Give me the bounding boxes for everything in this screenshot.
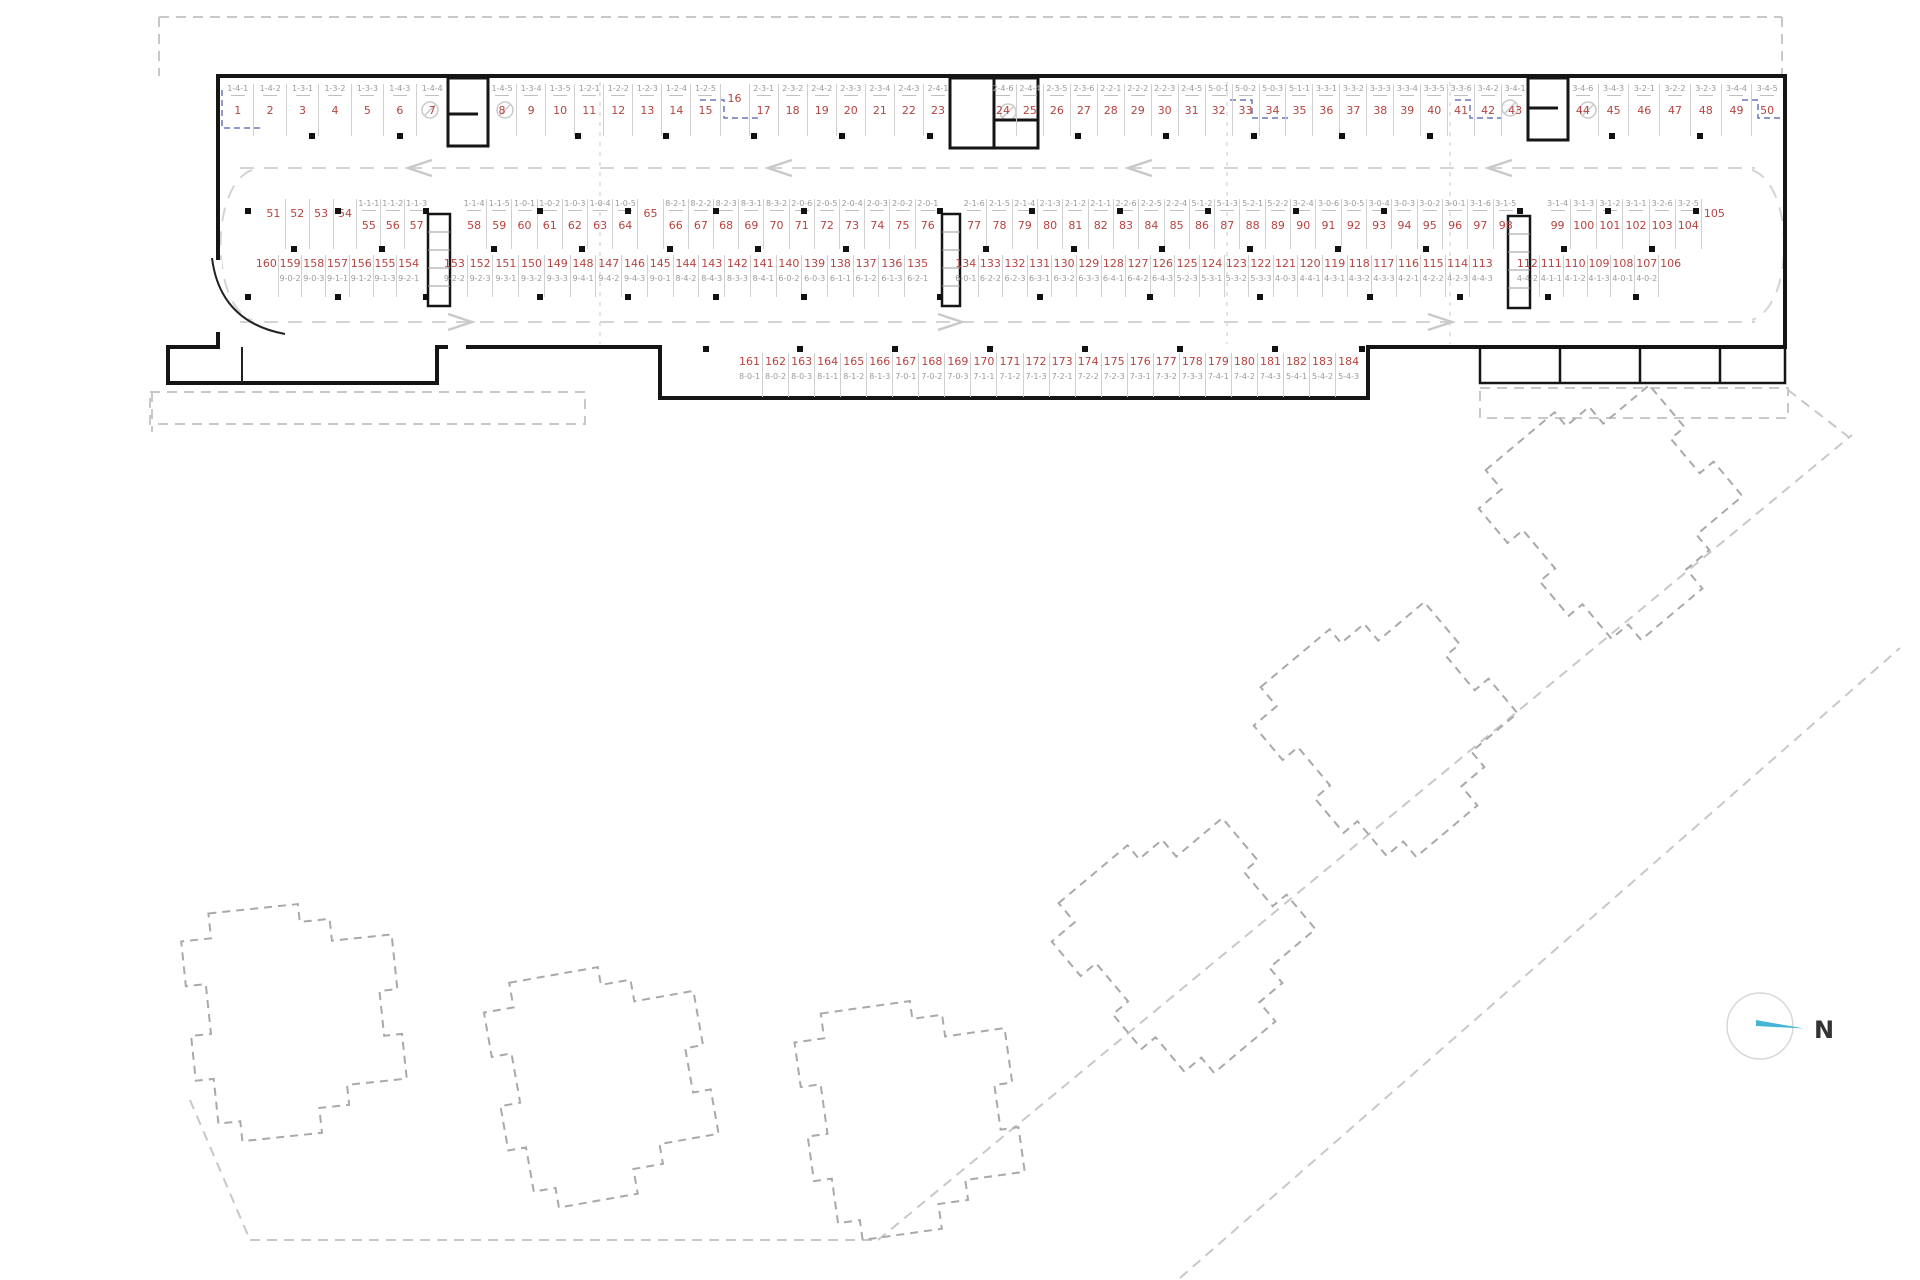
parking-space: 1727-1-3 bbox=[1023, 353, 1049, 397]
stall-tick-mark bbox=[1043, 210, 1057, 211]
parking-space-number: 99 bbox=[1545, 219, 1570, 232]
parking-space-code: 4-3-3 bbox=[1372, 274, 1396, 284]
column-marker bbox=[983, 246, 989, 252]
column-marker bbox=[1381, 208, 1387, 214]
parking-space-code: 7-4-3 bbox=[1258, 372, 1283, 382]
parking-space-number: 112 bbox=[1516, 257, 1539, 270]
stall-tick-mark bbox=[1246, 210, 1260, 211]
plan-linework: N bbox=[0, 0, 1920, 1280]
parking-space: 52 bbox=[285, 199, 309, 249]
parking-space: 1104-1-2 bbox=[1563, 255, 1587, 297]
column-marker bbox=[625, 208, 631, 214]
stall-tick-mark bbox=[1448, 210, 1462, 211]
parking-space-code: 7-3-2 bbox=[1154, 372, 1179, 382]
stall-tick-mark bbox=[1454, 95, 1468, 96]
parking-space: 1-3-49 bbox=[516, 84, 545, 136]
column-marker bbox=[1697, 133, 1703, 139]
column-marker bbox=[927, 133, 933, 139]
parking-space-code: 1-2-4 bbox=[662, 84, 690, 94]
parking-space-code: 6-3-1 bbox=[1028, 274, 1052, 284]
parking-space-number: 102 bbox=[1623, 219, 1648, 232]
parking-space-code: 1-2-5 bbox=[691, 84, 719, 94]
parking-space-code: 1-3-3 bbox=[352, 84, 383, 94]
parking-space-number: 35 bbox=[1286, 104, 1312, 117]
parking-space: 1579-1-1 bbox=[325, 255, 349, 297]
parking-space: 1-4-11 bbox=[222, 84, 253, 136]
stall-tick-mark bbox=[694, 210, 708, 211]
parking-space-number: 29 bbox=[1125, 104, 1151, 117]
column-marker bbox=[1293, 208, 1299, 214]
parking-space-code: 8-4-2 bbox=[674, 274, 699, 284]
parking-space-number: 170 bbox=[971, 355, 996, 368]
parking-space-code: 2-2-5 bbox=[1139, 199, 1163, 209]
parking-space: 1589-0-3 bbox=[301, 255, 325, 297]
parking-row-group: 515253541-1-1551-1-2561-1-357 bbox=[262, 199, 428, 249]
column-marker bbox=[843, 246, 849, 252]
parking-space: 1396-0-3 bbox=[801, 255, 827, 297]
parking-space-code: 8-3-2 bbox=[764, 199, 788, 209]
parking-space-number: 40 bbox=[1421, 104, 1447, 117]
parking-space-number: 83 bbox=[1114, 219, 1138, 232]
stall-tick-mark bbox=[992, 210, 1006, 211]
stall-tick-mark bbox=[593, 210, 607, 211]
parking-space-code: 1-4-1 bbox=[222, 84, 253, 94]
parking-space-number: 94 bbox=[1392, 219, 1416, 232]
column-marker bbox=[579, 246, 585, 252]
parking-space-code: 5-0-1 bbox=[1206, 84, 1232, 94]
parking-space-number: 141 bbox=[751, 257, 776, 270]
parking-space-code: 6-1-1 bbox=[828, 274, 853, 284]
parking-space: 1406-0-2 bbox=[776, 255, 802, 297]
parking-space-number: 127 bbox=[1126, 257, 1150, 270]
parking-space-number: 167 bbox=[893, 355, 918, 368]
parking-space: 1687-0-2 bbox=[918, 353, 944, 397]
parking-space-code: 5-4-3 bbox=[1336, 372, 1361, 382]
parking-space-number: 56 bbox=[381, 219, 404, 232]
parking-space-number: 131 bbox=[1028, 257, 1052, 270]
parking-space: 5-1-135 bbox=[1285, 84, 1312, 136]
parking-space-code: 5-1-1 bbox=[1286, 84, 1312, 94]
parking-space-number: 134 bbox=[954, 257, 978, 270]
parking-space-number: 27 bbox=[1071, 104, 1097, 117]
parking-space-code: 8-0-3 bbox=[789, 372, 814, 382]
parking-space-number: 153 bbox=[442, 257, 467, 270]
parking-space-code: 3-1-5 bbox=[1494, 199, 1518, 209]
parking-space-number: 179 bbox=[1206, 355, 1231, 368]
parking-space-number: 37 bbox=[1340, 104, 1366, 117]
parking-space: 1529-2-3 bbox=[467, 255, 493, 297]
stall-tick-mark bbox=[1131, 95, 1145, 96]
parking-row-group: 1-4-111-4-221-3-131-3-241-3-351-4-361-4-… bbox=[222, 84, 448, 136]
parking-space: 1418-4-1 bbox=[750, 255, 776, 297]
parking-space-number: 139 bbox=[802, 257, 827, 270]
parking-space-number: 66 bbox=[664, 219, 688, 232]
parking-space: 3-4-143 bbox=[1501, 84, 1528, 136]
parking-space: 3-1-697 bbox=[1467, 199, 1492, 249]
parking-space: 8-2-368 bbox=[713, 199, 738, 249]
column-marker bbox=[537, 294, 543, 300]
parking-space-code: 9-4-2 bbox=[596, 274, 621, 284]
parking-space-number: 51 bbox=[262, 207, 285, 220]
parking-space: 1336-2-2 bbox=[978, 255, 1003, 297]
parking-space: 1114-1-1 bbox=[1539, 255, 1563, 297]
parking-space-code: 3-3-2 bbox=[1340, 84, 1366, 94]
parking-space: 1489-4-1 bbox=[570, 255, 596, 297]
column-marker bbox=[713, 208, 719, 214]
parking-space-code: 3-2-2 bbox=[1660, 84, 1690, 94]
parking-space-number: 117 bbox=[1372, 257, 1396, 270]
parking-space-code: 2-3-2 bbox=[779, 84, 807, 94]
parking-space-code: 6-4-3 bbox=[1151, 274, 1175, 284]
parking-space-code: 2-0-4 bbox=[840, 199, 864, 209]
parking-space-code: 9-0-3 bbox=[302, 274, 325, 284]
parking-space-code: 1-3-1 bbox=[287, 84, 318, 94]
parking-space-number: 31 bbox=[1179, 104, 1205, 117]
parking-space-number: 151 bbox=[493, 257, 518, 270]
parking-space-code: 1-2-1 bbox=[575, 84, 603, 94]
parking-space: 3-3-540 bbox=[1420, 84, 1447, 136]
parking-space-code: 3-1-3 bbox=[1571, 199, 1596, 209]
parking-space-number: 57 bbox=[405, 219, 428, 232]
parking-space-number: 184 bbox=[1336, 355, 1361, 368]
parking-space-number: 111 bbox=[1540, 257, 1563, 270]
parking-row-group: 1539-2-21529-2-31519-3-11509-3-21499-3-3… bbox=[442, 255, 930, 297]
column-marker bbox=[379, 246, 385, 252]
parking-space: 1519-3-1 bbox=[492, 255, 518, 297]
parking-row-group: 1-4-581-3-491-3-5101-2-1111-2-2121-2-313… bbox=[488, 84, 952, 136]
column-marker bbox=[1037, 294, 1043, 300]
parking-space: 3-1-2101 bbox=[1596, 199, 1622, 249]
stall-tick-mark bbox=[845, 210, 859, 211]
parking-space-code: 1-4-4 bbox=[417, 84, 448, 94]
parking-space-code: 5-3-3 bbox=[1249, 274, 1273, 284]
parking-space-code: 1-3-5 bbox=[546, 84, 574, 94]
parking-space-number: 124 bbox=[1200, 257, 1224, 270]
parking-space: 1-2-515 bbox=[690, 84, 719, 136]
parking-space-code: 9-0-1 bbox=[648, 274, 673, 284]
parking-space-number: 14 bbox=[662, 104, 690, 117]
parking-space: 1438-4-3 bbox=[698, 255, 724, 297]
parking-space: 2-3-218 bbox=[778, 84, 807, 136]
parking-space: 105 bbox=[1701, 199, 1727, 249]
stall-tick-mark bbox=[1499, 210, 1513, 211]
parking-space: 2-0-275 bbox=[889, 199, 914, 249]
column-marker bbox=[1272, 346, 1278, 352]
stall-tick-mark bbox=[328, 95, 342, 96]
stall-tick-mark bbox=[996, 95, 1010, 96]
parking-space-code: 4-3-1 bbox=[1323, 274, 1347, 284]
parking-space-code: 3-4-6 bbox=[1568, 84, 1598, 94]
parking-space-number: 43 bbox=[1502, 104, 1528, 117]
parking-space-number: 90 bbox=[1291, 219, 1315, 232]
parking-space-number: 160 bbox=[255, 257, 278, 270]
parking-space-code: 6-2-1 bbox=[905, 274, 930, 284]
parking-space-number: 161 bbox=[737, 355, 762, 368]
parking-space-number: 165 bbox=[841, 355, 866, 368]
parking-space-number: 1 bbox=[222, 104, 253, 117]
stall-tick-mark bbox=[1266, 95, 1280, 96]
parking-space-code: 2-0-3 bbox=[865, 199, 889, 209]
stall-tick-mark bbox=[1427, 95, 1441, 96]
column-marker bbox=[1359, 346, 1365, 352]
stall-tick-mark bbox=[518, 210, 532, 211]
parking-space-code: 9-3-1 bbox=[493, 274, 518, 284]
parking-space: 1509-3-2 bbox=[518, 255, 544, 297]
parking-space: 5-0-233 bbox=[1232, 84, 1259, 136]
parking-space-number: 19 bbox=[808, 104, 836, 117]
parking-space: 1346-0-1 bbox=[954, 255, 978, 297]
parking-space-number: 152 bbox=[468, 257, 493, 270]
parking-space-number: 130 bbox=[1052, 257, 1076, 270]
parking-space: 1658-1-2 bbox=[840, 353, 866, 397]
column-marker bbox=[1367, 294, 1373, 300]
parking-space-code: 4-0-3 bbox=[1274, 274, 1298, 284]
column-marker bbox=[245, 294, 251, 300]
parking-space: 2-0-572 bbox=[814, 199, 839, 249]
parking-space: 8-3-270 bbox=[763, 199, 788, 249]
parking-space-code: 2-3-3 bbox=[837, 84, 865, 94]
parking-space-code: 2-1-1 bbox=[1089, 199, 1113, 209]
parking-space: 8-2-267 bbox=[688, 199, 713, 249]
parking-space-number: 34 bbox=[1260, 104, 1286, 117]
parking-space: 54 bbox=[333, 199, 357, 249]
parking-space-code: 3-3-4 bbox=[1394, 84, 1420, 94]
parking-space-number: 126 bbox=[1151, 257, 1175, 270]
parking-space: 8-3-169 bbox=[738, 199, 763, 249]
stall-tick-mark bbox=[410, 210, 424, 211]
parking-space-number: 176 bbox=[1128, 355, 1153, 368]
parking-space-code: 6-4-2 bbox=[1126, 274, 1150, 284]
parking-space-code: 5-0-3 bbox=[1260, 84, 1286, 94]
parking-space: 5-0-334 bbox=[1259, 84, 1286, 136]
stall-tick-mark bbox=[669, 210, 683, 211]
parking-space: 53 bbox=[309, 199, 333, 249]
parking-space-number: 30 bbox=[1152, 104, 1178, 117]
parking-space-number: 5 bbox=[352, 104, 383, 117]
parking-space-code: 3-4-5 bbox=[1752, 84, 1782, 94]
parking-space-number: 15 bbox=[691, 104, 719, 117]
stall-tick-mark bbox=[1607, 95, 1621, 96]
parking-space-code: 8-0-1 bbox=[737, 372, 762, 382]
parking-space: 1648-1-1 bbox=[814, 353, 840, 397]
stall-tick-mark bbox=[873, 95, 887, 96]
column-marker bbox=[1517, 208, 1523, 214]
parking-space-code: 2-2-1 bbox=[1098, 84, 1124, 94]
parking-space-code: 9-4-1 bbox=[571, 274, 596, 284]
parking-space-number: 91 bbox=[1316, 219, 1340, 232]
column-marker bbox=[663, 133, 669, 139]
parking-space-code: 4-4-3 bbox=[1470, 274, 1494, 284]
parking-space-number: 96 bbox=[1443, 219, 1467, 232]
stall-tick-mark bbox=[1397, 210, 1411, 211]
stall-tick-mark bbox=[669, 95, 683, 96]
parking-space: 1-1-155 bbox=[356, 199, 380, 249]
parking-space-code: 9-2-3 bbox=[468, 274, 493, 284]
parking-space: 2-2-683 bbox=[1113, 199, 1138, 249]
parking-space-code: 7-1-1 bbox=[971, 372, 996, 382]
parking-space-code: 6-2-3 bbox=[1003, 274, 1027, 284]
parking-space-number: 84 bbox=[1139, 219, 1163, 232]
parking-space-number: 147 bbox=[596, 257, 621, 270]
parking-space: 1-1-458 bbox=[462, 199, 486, 249]
parking-space: 2-1-479 bbox=[1012, 199, 1037, 249]
parking-space-code: 2-0-5 bbox=[815, 199, 839, 209]
parking-space: 1-2-212 bbox=[603, 84, 632, 136]
parking-space-number: 132 bbox=[1003, 257, 1027, 270]
stall-tick-mark bbox=[492, 210, 506, 211]
stall-tick-mark bbox=[1637, 95, 1651, 96]
parking-space-number: 142 bbox=[725, 257, 750, 270]
parking-space: 160 bbox=[255, 255, 278, 297]
parking-space-number: 92 bbox=[1342, 219, 1366, 232]
parking-space-code: 2-4-3 bbox=[895, 84, 923, 94]
parking-space-code: 4-4-1 bbox=[1298, 274, 1322, 284]
column-marker bbox=[1163, 133, 1169, 139]
stall-tick-mark bbox=[698, 95, 712, 96]
stall-tick-mark bbox=[1629, 210, 1643, 211]
storage-rooms bbox=[1480, 347, 1785, 383]
parking-space-number: 85 bbox=[1165, 219, 1189, 232]
parking-space-number: 145 bbox=[648, 257, 673, 270]
parking-space: 1214-0-3 bbox=[1273, 255, 1298, 297]
stall-tick-mark bbox=[1185, 95, 1199, 96]
parking-space-code: 9-2-2 bbox=[442, 274, 467, 284]
stall-tick-mark bbox=[386, 210, 400, 211]
parking-space-number: 143 bbox=[699, 257, 724, 270]
parking-space-number: 175 bbox=[1102, 355, 1127, 368]
parking-space: 2-1-677 bbox=[962, 199, 986, 249]
parking-space-number: 9 bbox=[517, 104, 545, 117]
stall-tick-mark bbox=[1699, 95, 1713, 96]
stall-tick-mark bbox=[1400, 95, 1414, 96]
parking-space: 3-0-691 bbox=[1315, 199, 1340, 249]
parking-space-number: 70 bbox=[764, 219, 788, 232]
stall-tick-mark bbox=[820, 210, 834, 211]
stall-tick-mark bbox=[1077, 95, 1091, 96]
parking-space: 1386-1-1 bbox=[827, 255, 853, 297]
parking-space-number: 21 bbox=[866, 104, 894, 117]
future-building-outlines bbox=[179, 354, 1772, 1245]
parking-space-number: 75 bbox=[890, 219, 914, 232]
column-marker bbox=[1247, 246, 1253, 252]
parking-space: 1569-1-2 bbox=[349, 255, 373, 297]
parking-space-number: 123 bbox=[1225, 257, 1249, 270]
column-marker bbox=[1251, 133, 1257, 139]
parking-space: 16 bbox=[720, 84, 749, 136]
stall-tick-mark bbox=[263, 95, 277, 96]
column-marker bbox=[1082, 346, 1088, 352]
parking-space-code: 2-3-1 bbox=[750, 84, 778, 94]
parking-space: 1559-1-3 bbox=[373, 255, 397, 297]
stall-tick-mark bbox=[1760, 95, 1774, 96]
stall-tick-mark bbox=[495, 95, 509, 96]
stall-tick-mark bbox=[786, 95, 800, 96]
parking-space: 2-4-219 bbox=[807, 84, 836, 136]
parking-space-number: 26 bbox=[1044, 104, 1070, 117]
parking-space: 2-2-128 bbox=[1097, 84, 1124, 136]
parking-space-code: 3-2-1 bbox=[1629, 84, 1659, 94]
parking-space-code: 2-1-5 bbox=[987, 199, 1011, 209]
parking-space-code: 8-2-2 bbox=[689, 199, 713, 209]
parking-space: 1225-3-3 bbox=[1248, 255, 1273, 297]
parking-space-number: 159 bbox=[279, 257, 302, 270]
parking-space-code: 5-3-1 bbox=[1200, 274, 1224, 284]
column-marker bbox=[397, 133, 403, 139]
parking-space-number: 120 bbox=[1298, 257, 1322, 270]
parking-space-code: 3-0-1 bbox=[1443, 199, 1467, 209]
parking-space: 1316-3-1 bbox=[1027, 255, 1052, 297]
parking-space-number: 137 bbox=[854, 257, 879, 270]
parking-space-number: 121 bbox=[1274, 257, 1298, 270]
parking-row-group: 3-4-6443-4-3453-2-1463-2-2473-2-3483-4-4… bbox=[1568, 84, 1782, 136]
parking-space-code: 1-0-1 bbox=[512, 199, 536, 209]
column-marker bbox=[1457, 294, 1463, 300]
parking-space: 1628-0-2 bbox=[762, 353, 788, 397]
parking-space: 3-0-394 bbox=[1391, 199, 1416, 249]
parking-space: 2-2-485 bbox=[1164, 199, 1189, 249]
parking-space: 1-2-313 bbox=[632, 84, 661, 136]
parking-space: 1204-4-1 bbox=[1297, 255, 1322, 297]
parking-space: 1737-2-1 bbox=[1049, 353, 1075, 397]
parking-space-number: 79 bbox=[1013, 219, 1037, 232]
parking-space-number: 32 bbox=[1206, 104, 1232, 117]
parking-space-code: 4-2-1 bbox=[1397, 274, 1421, 284]
column-marker bbox=[1205, 208, 1211, 214]
parking-space-code: 6-1-3 bbox=[879, 274, 904, 284]
stall-tick-mark bbox=[870, 210, 884, 211]
column-marker bbox=[245, 208, 251, 214]
building-outline bbox=[1238, 571, 1547, 882]
parking-space-code: 2-2-4 bbox=[1165, 199, 1189, 209]
parking-space-number: 33 bbox=[1233, 104, 1259, 117]
parking-space: 1668-1-3 bbox=[866, 353, 892, 397]
column-marker bbox=[1339, 133, 1345, 139]
parking-space: 2-4-425 bbox=[1016, 84, 1043, 136]
column-marker bbox=[291, 246, 297, 252]
parking-space-code: 4-2-2 bbox=[1421, 274, 1445, 284]
parking-space: 1677-0-1 bbox=[892, 353, 918, 397]
parking-space: 1194-3-1 bbox=[1322, 255, 1347, 297]
building-outline bbox=[179, 895, 412, 1146]
parking-space-number: 148 bbox=[571, 257, 596, 270]
column-marker bbox=[751, 133, 757, 139]
column-marker bbox=[1427, 133, 1433, 139]
parking-space-number: 103 bbox=[1650, 219, 1675, 232]
parking-space: 2-0-374 bbox=[864, 199, 889, 249]
parking-space: 1717-1-2 bbox=[996, 353, 1022, 397]
parking-space-code: 4-3-2 bbox=[1348, 274, 1372, 284]
parking-space: 51 bbox=[262, 199, 285, 249]
column-marker bbox=[491, 246, 497, 252]
parking-space-code: 9-2-1 bbox=[397, 274, 420, 284]
parking-space-code: 1-1-5 bbox=[487, 199, 511, 209]
parking-space-code: 5-2-3 bbox=[1175, 274, 1199, 284]
parking-space-code: 5-3-2 bbox=[1225, 274, 1249, 284]
parking-space: 1255-2-3 bbox=[1174, 255, 1199, 297]
parking-space: 1-0-160 bbox=[511, 199, 536, 249]
parking-space-code: 8-4-3 bbox=[699, 274, 724, 284]
parking-space-number: 171 bbox=[997, 355, 1022, 368]
column-marker bbox=[987, 346, 993, 352]
north-compass: N bbox=[1727, 993, 1834, 1059]
parking-space: 2-3-320 bbox=[836, 84, 865, 136]
stall-tick-mark bbox=[1170, 210, 1184, 211]
parking-space-number: 45 bbox=[1599, 104, 1629, 117]
parking-space-code: 3-1-4 bbox=[1545, 199, 1570, 209]
parking-row-group: 1346-0-11336-2-21326-2-31316-3-11306-3-2… bbox=[954, 255, 1494, 297]
parking-space: 2-4-322 bbox=[894, 84, 923, 136]
parking-space-number: 10 bbox=[546, 104, 574, 117]
